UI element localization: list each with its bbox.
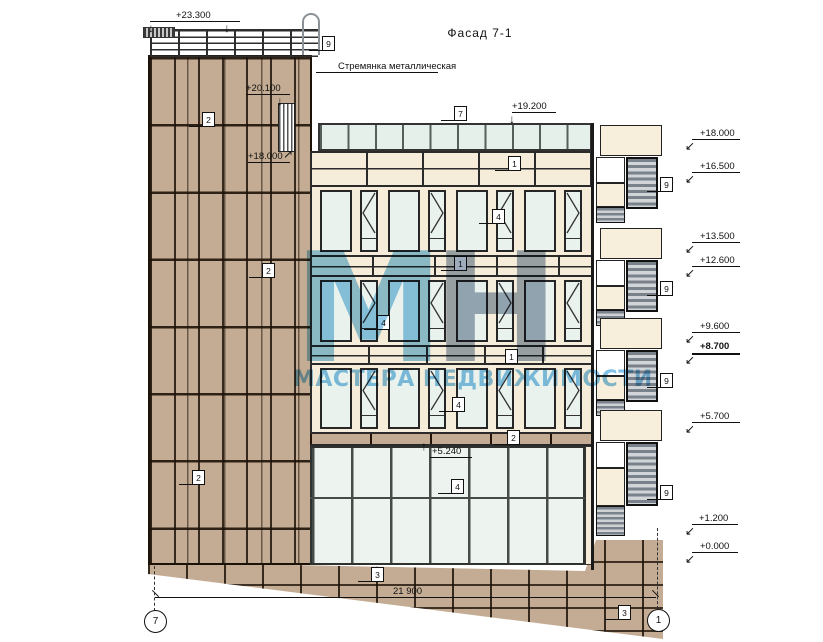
elevation-mark: +9.600	[700, 321, 729, 332]
callout-leader	[309, 50, 323, 51]
fixed-window	[524, 190, 556, 252]
stair-opening	[596, 157, 625, 183]
elevation-arrow-icon: ↓	[509, 114, 515, 124]
fixed-window	[388, 368, 420, 429]
elevation-mark: +5.240	[432, 446, 461, 457]
elevation-line	[692, 242, 740, 243]
elevation-arrow-icon: ↙	[685, 174, 695, 184]
elevation-line	[248, 162, 290, 163]
transom-line	[566, 238, 580, 239]
transom-line	[498, 415, 512, 416]
casement-window	[428, 190, 446, 252]
callout-number: 9	[664, 180, 669, 190]
casement-window	[496, 280, 514, 342]
callout-leader	[647, 295, 661, 296]
spandrel-band-1	[310, 151, 592, 187]
spandrel-band-3	[310, 345, 592, 365]
storefront-glazing	[310, 446, 585, 565]
stair-parapet-panel	[600, 228, 662, 259]
callout-number: 9	[664, 488, 669, 498]
transom-line	[430, 328, 444, 329]
callout-leader	[441, 270, 455, 271]
dimension-value: 21 900	[393, 586, 422, 597]
casement-window	[564, 190, 582, 252]
window-row-2	[310, 277, 592, 345]
callout-box-9: 9	[660, 281, 673, 296]
elevation-arrow-icon: ↓	[148, 23, 154, 33]
elevation-arrow-icon: ↗	[283, 149, 293, 159]
stair-parapet-panel	[600, 318, 662, 349]
casement-opening-icon	[566, 192, 580, 234]
callout-box-9: 9	[660, 485, 673, 500]
casement-window	[496, 368, 514, 429]
elevation-mark: +8.700	[700, 341, 729, 352]
axis-bubble-1: 1	[647, 609, 670, 632]
elevation-line	[692, 172, 740, 173]
elevation-line	[692, 332, 740, 333]
stair-flight-louver	[626, 350, 658, 402]
spandrel-band-2	[310, 255, 592, 277]
callout-leader	[441, 120, 455, 121]
callout-number: 1	[458, 259, 463, 269]
elevation-mark: +13.500	[700, 231, 735, 242]
callout-number: 1	[509, 352, 514, 362]
elevation-mark: +23.300	[176, 10, 211, 21]
callout-leader	[439, 411, 453, 412]
stair-steps	[596, 506, 625, 536]
casement-opening-icon	[362, 192, 376, 234]
ladder-hoop	[302, 13, 320, 55]
elevation-arrow-icon: ↓	[277, 96, 283, 106]
casement-opening-icon	[498, 370, 512, 411]
wall-ladder	[278, 103, 295, 152]
callout-leader	[189, 126, 203, 127]
callout-box-2: 2	[262, 263, 275, 278]
casement-window	[428, 280, 446, 342]
drawing-title: Фасад 7-1	[420, 26, 540, 40]
elevation-line	[692, 552, 738, 553]
callout-leader	[647, 499, 661, 500]
elevation-arrow-icon: ↓	[224, 23, 230, 33]
elevation-line	[692, 353, 740, 355]
transom-line	[362, 238, 376, 239]
stair-flight-louver	[626, 260, 658, 312]
callout-box-1: 1	[454, 256, 467, 271]
casement-opening-icon	[430, 282, 444, 324]
callout-number: 2	[206, 115, 211, 125]
casement-window	[360, 280, 378, 342]
callout-box-1: 1	[505, 349, 518, 364]
stair-opening	[596, 442, 625, 468]
window-row-1	[310, 187, 592, 255]
elevation-mark: +5.700	[700, 411, 729, 422]
fixed-window	[388, 190, 420, 252]
callout-number: 4	[381, 318, 386, 328]
fixed-window	[320, 190, 352, 252]
elevation-mark: +16.500	[700, 161, 735, 172]
callout-box-2: 2	[192, 470, 205, 485]
callout-leader	[438, 493, 452, 494]
casement-opening-icon	[566, 282, 580, 324]
fixed-window	[524, 368, 556, 429]
elevation-line	[246, 94, 290, 95]
elevation-arrow-icon: ↙	[685, 244, 695, 254]
fixed-window	[388, 280, 420, 342]
axis-line-7	[154, 566, 155, 611]
stair-opening	[596, 350, 625, 376]
elevation-arrow-icon: ↙	[685, 526, 695, 536]
callout-number: 2	[266, 266, 271, 276]
elevation-arrow-icon: ↙	[685, 334, 695, 344]
callout-number: 3	[375, 570, 380, 580]
storefront-mullion	[310, 497, 585, 499]
callout-number: 9	[326, 39, 331, 49]
axis-bubble-7: 7	[144, 610, 167, 633]
casement-window	[360, 190, 378, 252]
elevation-mark: +0.000	[700, 541, 729, 552]
casement-window	[564, 368, 582, 429]
elevation-arrow-icon: ↙	[685, 424, 695, 434]
casement-opening-icon	[430, 370, 444, 411]
ladder-note-leader	[316, 72, 438, 73]
transom-line	[566, 415, 580, 416]
casement-window	[428, 368, 446, 429]
elevation-mark: +18.000	[248, 151, 283, 162]
ladder-note: Стремянка металлическая	[338, 61, 456, 72]
callout-number: 4	[456, 400, 461, 410]
callout-leader	[249, 277, 263, 278]
window-row-3	[310, 365, 592, 432]
elevation-arrow-icon: ↙	[685, 268, 695, 278]
roof-railing	[150, 29, 318, 57]
callout-box-4: 4	[492, 209, 505, 224]
elevation-mark: +18.000	[700, 128, 735, 139]
casement-window	[564, 280, 582, 342]
stair-panel	[596, 468, 625, 506]
casement-opening-icon	[430, 192, 444, 234]
stair-panel	[596, 286, 625, 310]
elevation-line	[692, 524, 738, 525]
casement-opening-icon	[498, 282, 512, 324]
callout-leader	[647, 387, 661, 388]
elevation-mark: +1.200	[699, 513, 728, 524]
elevation-arrow-icon: ↑	[421, 441, 427, 451]
callout-leader	[358, 581, 372, 582]
callout-number: 3	[622, 608, 627, 618]
callout-number: 4	[455, 482, 460, 492]
casement-opening-icon	[362, 370, 376, 411]
stair-panel	[596, 183, 625, 207]
callout-box-4: 4	[451, 479, 464, 494]
stair-parapet-panel	[600, 410, 662, 441]
stair-steps	[596, 207, 625, 223]
elevation-line	[692, 422, 740, 423]
axis-line-1	[657, 528, 658, 609]
callout-number: 9	[664, 376, 669, 386]
callout-leader	[179, 484, 193, 485]
elevation-mark: +19.200	[512, 101, 547, 112]
elevation-arrow-icon: ↙	[685, 355, 695, 365]
elevation-line	[692, 266, 740, 267]
callout-box-1: 1	[508, 156, 521, 171]
casement-opening-icon	[566, 370, 580, 411]
transom-line	[430, 415, 444, 416]
stair-parapet-panel	[600, 125, 662, 156]
stair-flight-louver	[626, 442, 658, 506]
stone-band	[310, 432, 592, 446]
callout-number: 7	[458, 109, 463, 119]
glass-parapet-band	[318, 123, 592, 151]
callout-number: 4	[496, 212, 501, 222]
callout-box-3: 3	[618, 605, 631, 620]
facade-drawing: 21 900 Фасад 7-1 Стремянка металлическая…	[0, 0, 823, 642]
elevation-arrow-icon: ↙	[685, 554, 695, 564]
callout-box-9: 9	[660, 373, 673, 388]
callout-leader	[605, 619, 619, 620]
callout-box-9: 9	[322, 36, 335, 51]
stair-panel	[596, 376, 625, 400]
curtain-wall-edge	[591, 123, 594, 570]
callout-leader	[494, 444, 508, 445]
transom-line	[362, 415, 376, 416]
callout-box-9: 9	[660, 177, 673, 192]
callout-box-7: 7	[454, 106, 467, 121]
elevation-arrow-icon: ↙	[685, 141, 695, 151]
casement-opening-icon	[362, 282, 376, 324]
elevation-line	[692, 139, 740, 140]
stair-opening	[596, 260, 625, 286]
callout-leader	[492, 363, 506, 364]
fixed-window	[456, 280, 488, 342]
casement-window	[360, 368, 378, 429]
elevation-line	[512, 112, 556, 113]
callout-number: 9	[664, 284, 669, 294]
elevation-line	[430, 457, 472, 458]
callout-leader	[364, 329, 378, 330]
callout-leader	[495, 170, 509, 171]
callout-leader	[479, 223, 493, 224]
transom-line	[566, 328, 580, 329]
fixed-window	[320, 368, 352, 429]
callout-box-4: 4	[452, 397, 465, 412]
stair-flight-louver	[626, 157, 658, 209]
callout-box-4: 4	[377, 315, 390, 330]
callout-box-3: 3	[371, 567, 384, 582]
fixed-window	[524, 280, 556, 342]
transom-line	[498, 328, 512, 329]
callout-box-2: 2	[507, 430, 520, 445]
transom-line	[498, 238, 512, 239]
fixed-window	[320, 280, 352, 342]
elevation-mark: +20.100	[246, 83, 281, 94]
callout-leader	[647, 191, 661, 192]
callout-number: 1	[512, 159, 517, 169]
callout-box-2: 2	[202, 112, 215, 127]
dimension-line	[155, 597, 656, 598]
transom-line	[430, 238, 444, 239]
elevation-mark: +12.600	[700, 255, 735, 266]
callout-number: 2	[196, 473, 201, 483]
fixed-window	[456, 190, 488, 252]
callout-number: 2	[511, 433, 516, 443]
